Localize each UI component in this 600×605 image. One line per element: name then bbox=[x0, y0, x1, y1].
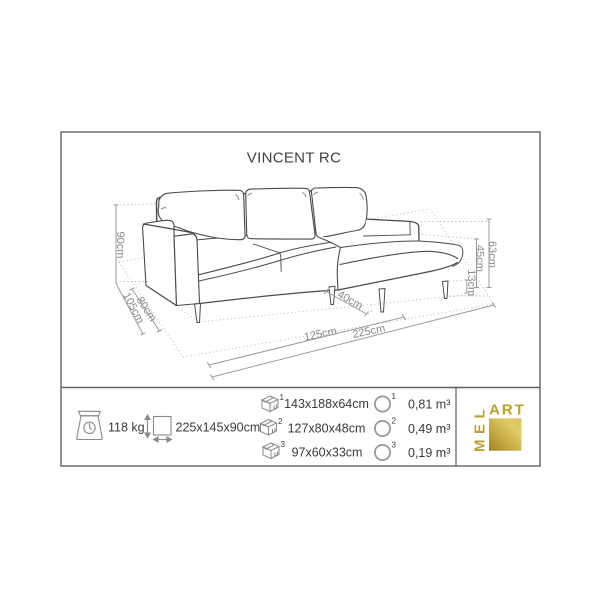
svg-text:MEL: MEL bbox=[472, 404, 489, 452]
svg-text:0,49 m³: 0,49 m³ bbox=[408, 422, 450, 436]
svg-text:0,19 m³: 0,19 m³ bbox=[408, 446, 450, 460]
svg-text:3: 3 bbox=[281, 440, 286, 449]
svg-text:225x145x90cm: 225x145x90cm bbox=[176, 421, 261, 435]
svg-text:2: 2 bbox=[278, 417, 283, 426]
svg-text:VINCENT RC: VINCENT RC bbox=[247, 150, 341, 167]
svg-text:127x80x48cm: 127x80x48cm bbox=[288, 422, 366, 436]
svg-text:ART: ART bbox=[489, 402, 526, 419]
svg-text:143x188x64cm: 143x188x64cm bbox=[284, 397, 369, 411]
svg-text:97x60x33cm: 97x60x33cm bbox=[292, 446, 363, 460]
svg-text:45cm: 45cm bbox=[473, 245, 485, 272]
svg-text:118 kg: 118 kg bbox=[108, 421, 145, 435]
svg-text:13cm: 13cm bbox=[465, 269, 477, 296]
svg-text:90cm: 90cm bbox=[114, 232, 126, 259]
svg-text:3: 3 bbox=[392, 441, 397, 450]
svg-text:1: 1 bbox=[392, 392, 397, 401]
svg-text:2: 2 bbox=[392, 417, 397, 426]
svg-text:63cm: 63cm bbox=[486, 241, 498, 268]
svg-text:0,81 m³: 0,81 m³ bbox=[408, 398, 450, 412]
